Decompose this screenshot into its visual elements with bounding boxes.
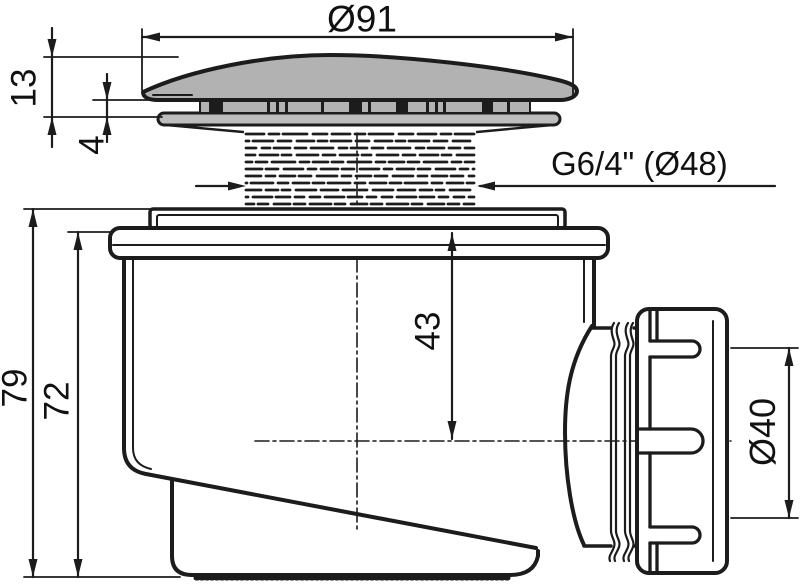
body-wall-right <box>584 258 594 326</box>
pipe-break-lines <box>609 323 633 561</box>
label-cap-height: 13 <box>7 69 42 108</box>
cap-flange-disc <box>158 113 560 132</box>
dimension-rim-gap <box>93 74 160 142</box>
body-wall-left <box>124 258 536 548</box>
outlet-intersection-curve <box>565 326 592 545</box>
label-body-height: 72 <box>40 382 75 421</box>
body-bowl-bottom <box>172 480 538 578</box>
outlet-nut <box>637 309 727 573</box>
label-overall-height: 79 <box>0 369 33 408</box>
label-rim-gap: 4 <box>75 135 110 154</box>
cap-dome <box>143 55 577 100</box>
body-upper-ring <box>150 209 565 228</box>
dimension-bowl-depth <box>448 233 457 439</box>
technical-drawing-canvas: Ø91 13 4 G6/4" (Ø48) 79 72 43 Ø40 <box>0 0 800 584</box>
body-flange <box>110 228 608 258</box>
label-outlet-diameter: Ø40 <box>745 398 781 466</box>
thread-section <box>246 134 474 204</box>
label-cap-diameter: Ø91 <box>327 1 397 38</box>
label-thread-spec: G6/4" (Ø48) <box>551 147 728 180</box>
label-bowl-depth: 43 <box>411 312 446 351</box>
drain-trap-drawing <box>0 0 800 584</box>
